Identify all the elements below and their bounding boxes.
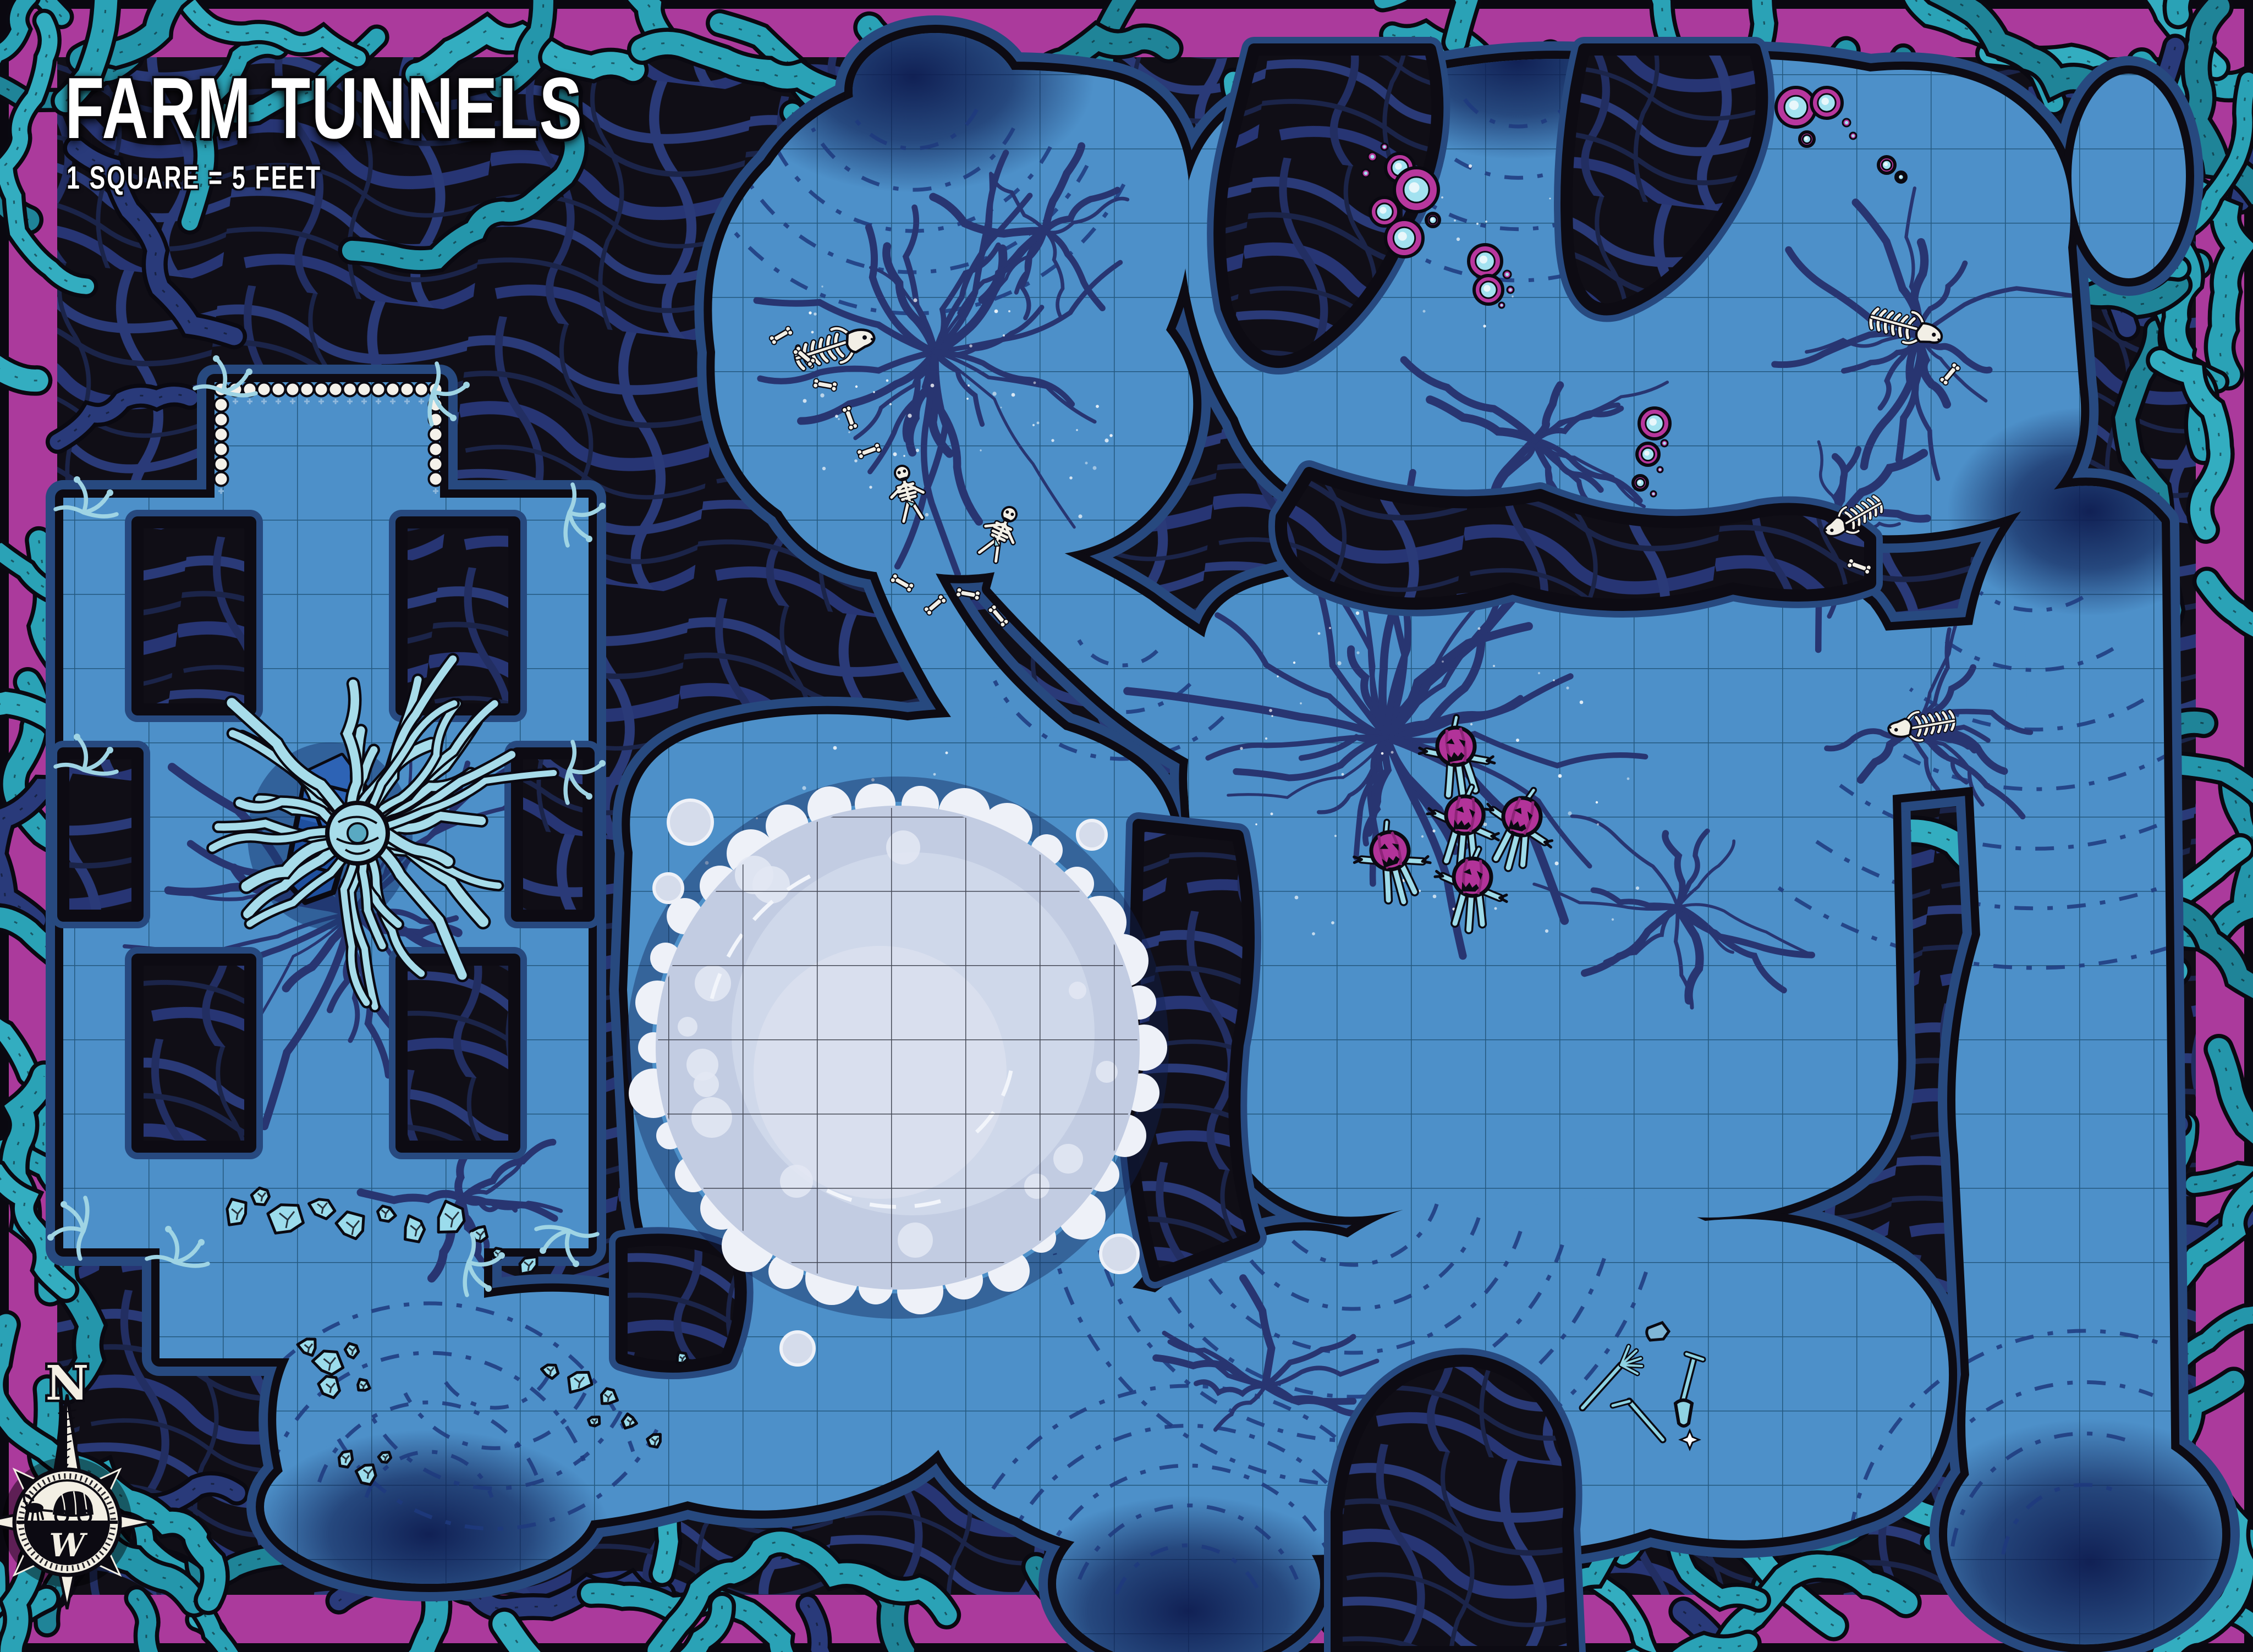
map-canvas: N W (0, 0, 2253, 1652)
compass-emblem-letter: W (49, 1527, 87, 1564)
farm-tunnels-battlemap: N W FARM TUNNELS 1 SQUARE = 5 FEET (0, 0, 2253, 1652)
